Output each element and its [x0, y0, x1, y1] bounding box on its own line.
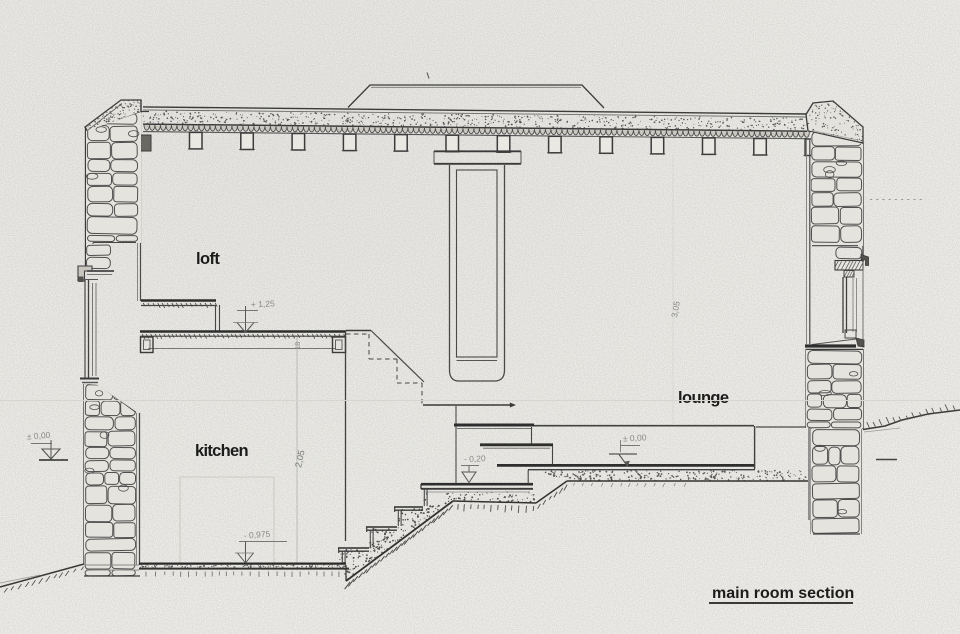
svg-text:main room section: main room section	[712, 585, 854, 602]
svg-text:- 0,20: - 0,20	[464, 453, 486, 464]
svg-text:± 0,00: ± 0,00	[26, 430, 50, 442]
svg-text:kitchen: kitchen	[195, 442, 248, 460]
svg-text:- 0,975: - 0,975	[243, 529, 270, 541]
svg-text:lounge: lounge	[678, 389, 729, 407]
svg-text:18: 18	[293, 342, 302, 350]
svg-text:± 0,00: ± 0,00	[623, 432, 647, 443]
svg-text:loft: loft	[196, 250, 220, 268]
svg-text:+ 1,25: + 1,25	[251, 298, 276, 309]
